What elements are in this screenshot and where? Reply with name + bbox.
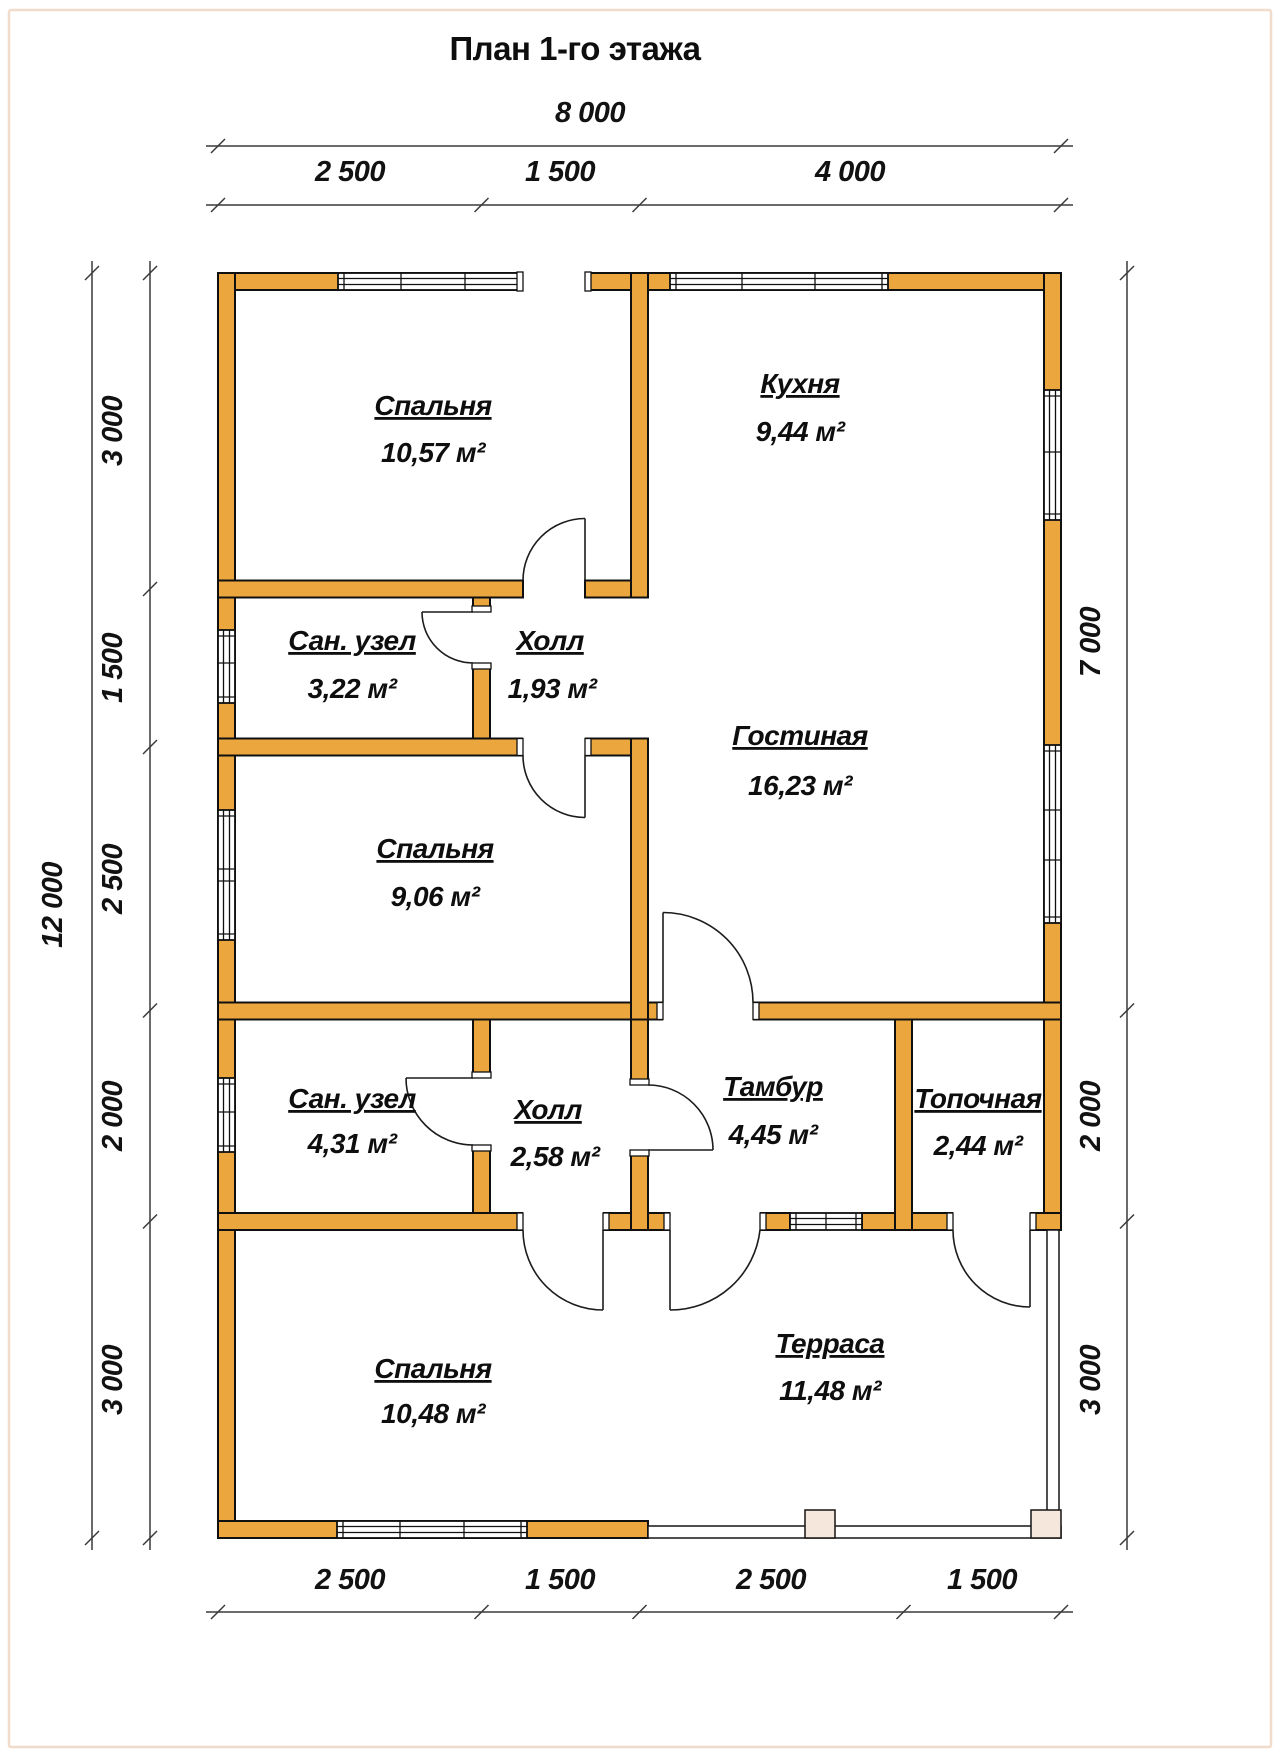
room-area: 2,44 м² bbox=[933, 1130, 1024, 1161]
door bbox=[523, 756, 585, 818]
room-name: Топочная bbox=[914, 1083, 1041, 1114]
window bbox=[218, 810, 235, 940]
room-area: 10,48 м² bbox=[381, 1398, 486, 1429]
room-area: 3,22 м² bbox=[308, 673, 398, 704]
room-area: 9,06 м² bbox=[391, 881, 481, 912]
window bbox=[1044, 745, 1061, 923]
page-title: План 1-го этажа bbox=[449, 30, 701, 67]
room-area: 4,45 м² bbox=[728, 1119, 819, 1150]
dim-label: 2 000 bbox=[1075, 1081, 1107, 1152]
window bbox=[218, 630, 235, 703]
room-area: 16,23 м² bbox=[748, 770, 853, 801]
room-name: Кухня bbox=[760, 368, 839, 399]
dim-label: 3 000 bbox=[97, 396, 129, 466]
room-name: Спальня bbox=[374, 390, 491, 421]
dim-label: 2 000 bbox=[97, 1081, 129, 1152]
dim-label: 3 000 bbox=[1075, 1345, 1107, 1415]
door bbox=[670, 1230, 760, 1310]
room-area: 2,58 м² bbox=[510, 1141, 601, 1172]
door bbox=[953, 1230, 1030, 1307]
door bbox=[663, 913, 753, 1003]
dim-label: 1 500 bbox=[525, 1564, 595, 1596]
dim-label: 1 500 bbox=[525, 156, 595, 188]
door bbox=[648, 1085, 713, 1150]
door bbox=[422, 612, 473, 663]
terrace-south-wall bbox=[648, 1526, 1061, 1538]
room-name: Тамбур bbox=[723, 1071, 823, 1102]
room-name: Холл bbox=[512, 1094, 582, 1125]
window bbox=[338, 273, 528, 290]
window bbox=[670, 273, 888, 290]
dim-label: 4 000 bbox=[814, 156, 885, 188]
dim-label: 3 000 bbox=[97, 1345, 129, 1415]
window bbox=[1044, 390, 1061, 520]
dim-label: 8 000 bbox=[555, 97, 625, 129]
floor-plan-page: План 1-го этажа bbox=[0, 0, 1280, 1759]
window bbox=[337, 1521, 527, 1538]
door bbox=[523, 519, 585, 581]
dim-label: 2 500 bbox=[314, 1564, 385, 1596]
floor-plan-drawing: План 1-го этажа bbox=[0, 0, 1280, 1759]
room-area: 9,44 м² bbox=[756, 416, 846, 447]
room-name: Сан. узел bbox=[288, 1083, 416, 1114]
door bbox=[406, 1078, 473, 1145]
room-name: Спальня bbox=[376, 833, 493, 864]
room-name: Сан. узел bbox=[288, 625, 416, 656]
window bbox=[218, 1078, 235, 1152]
room-area: 4,31 м² bbox=[307, 1128, 398, 1159]
terrace-post bbox=[805, 1510, 835, 1538]
terrace-east-wall bbox=[1047, 1230, 1059, 1528]
room-area: 1,93 м² bbox=[508, 673, 598, 704]
dim-label: 1 500 bbox=[97, 633, 129, 703]
dim-label: 2 500 bbox=[97, 844, 129, 915]
room-area: 10,57 м² bbox=[381, 437, 486, 468]
room-name: Терраса bbox=[775, 1328, 884, 1359]
room-area: 11,48 м² bbox=[779, 1375, 882, 1406]
room-name: Холл bbox=[514, 625, 584, 656]
dimension-lines: 8 000 2 500 1 500 4 000 2 500 1 500 2 50… bbox=[37, 97, 1134, 1619]
dim-label: 7 000 bbox=[1075, 607, 1107, 677]
door bbox=[523, 1230, 603, 1310]
room-labels: Спальня 10,57 м² Кухня 9,44 м² Сан. узел… bbox=[288, 368, 1041, 1429]
dim-label: 2 500 bbox=[735, 1564, 806, 1596]
room-name: Гостиная bbox=[732, 720, 867, 751]
terrace-post bbox=[1031, 1510, 1061, 1538]
walls bbox=[218, 273, 1061, 1538]
dim-label: 2 500 bbox=[314, 156, 385, 188]
room-name: Спальня bbox=[374, 1353, 491, 1384]
door-swings bbox=[406, 519, 1030, 1311]
dim-label: 1 500 bbox=[947, 1564, 1017, 1596]
window bbox=[790, 1213, 862, 1230]
dim-label: 12 000 bbox=[37, 862, 69, 948]
